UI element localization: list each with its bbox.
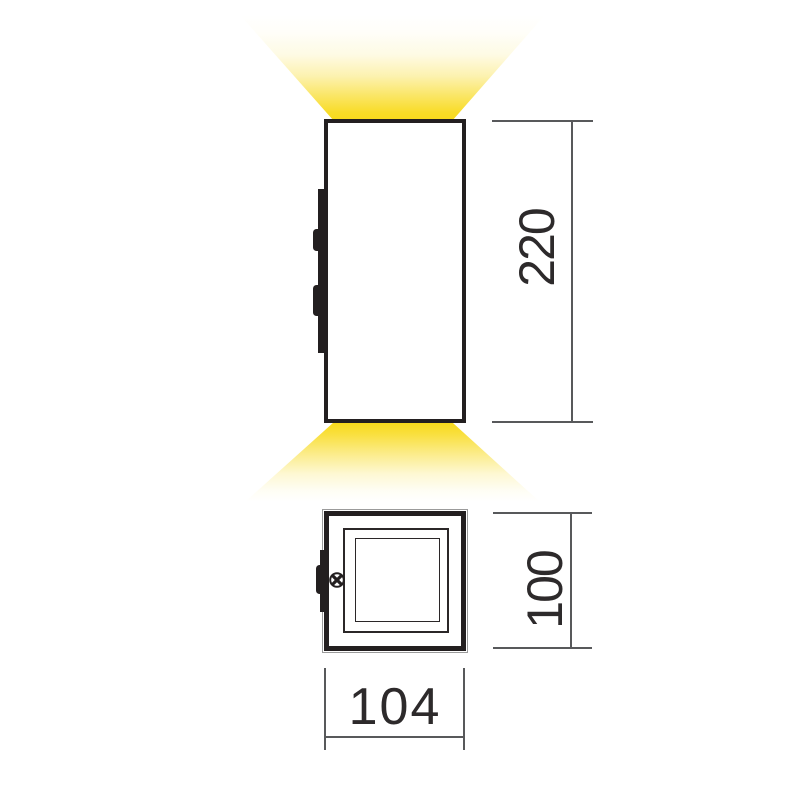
light-beam-down (245, 423, 540, 502)
dim-height-extension-line-top (492, 120, 593, 122)
front-view-body-outline (324, 119, 466, 423)
dim-height-extension-line-bottom (492, 421, 593, 423)
dimension-drawing: 220 100 104 (0, 0, 800, 800)
dim-width-line (324, 736, 465, 738)
height-dimension-label: 220 (511, 168, 563, 328)
depth-dimension-label: 100 (519, 510, 571, 670)
dim-height-line (571, 120, 573, 423)
light-beam-up (240, 15, 545, 120)
width-dimension-label: 104 (315, 681, 475, 733)
mounting-clip-upper (313, 229, 320, 251)
phillips-screw-icon (327, 570, 347, 590)
top-view-diffuser-frame (355, 538, 440, 622)
mounting-clip-lower (313, 285, 320, 316)
mounting-clip-plan (316, 565, 323, 594)
mounting-rail-front (318, 189, 326, 353)
